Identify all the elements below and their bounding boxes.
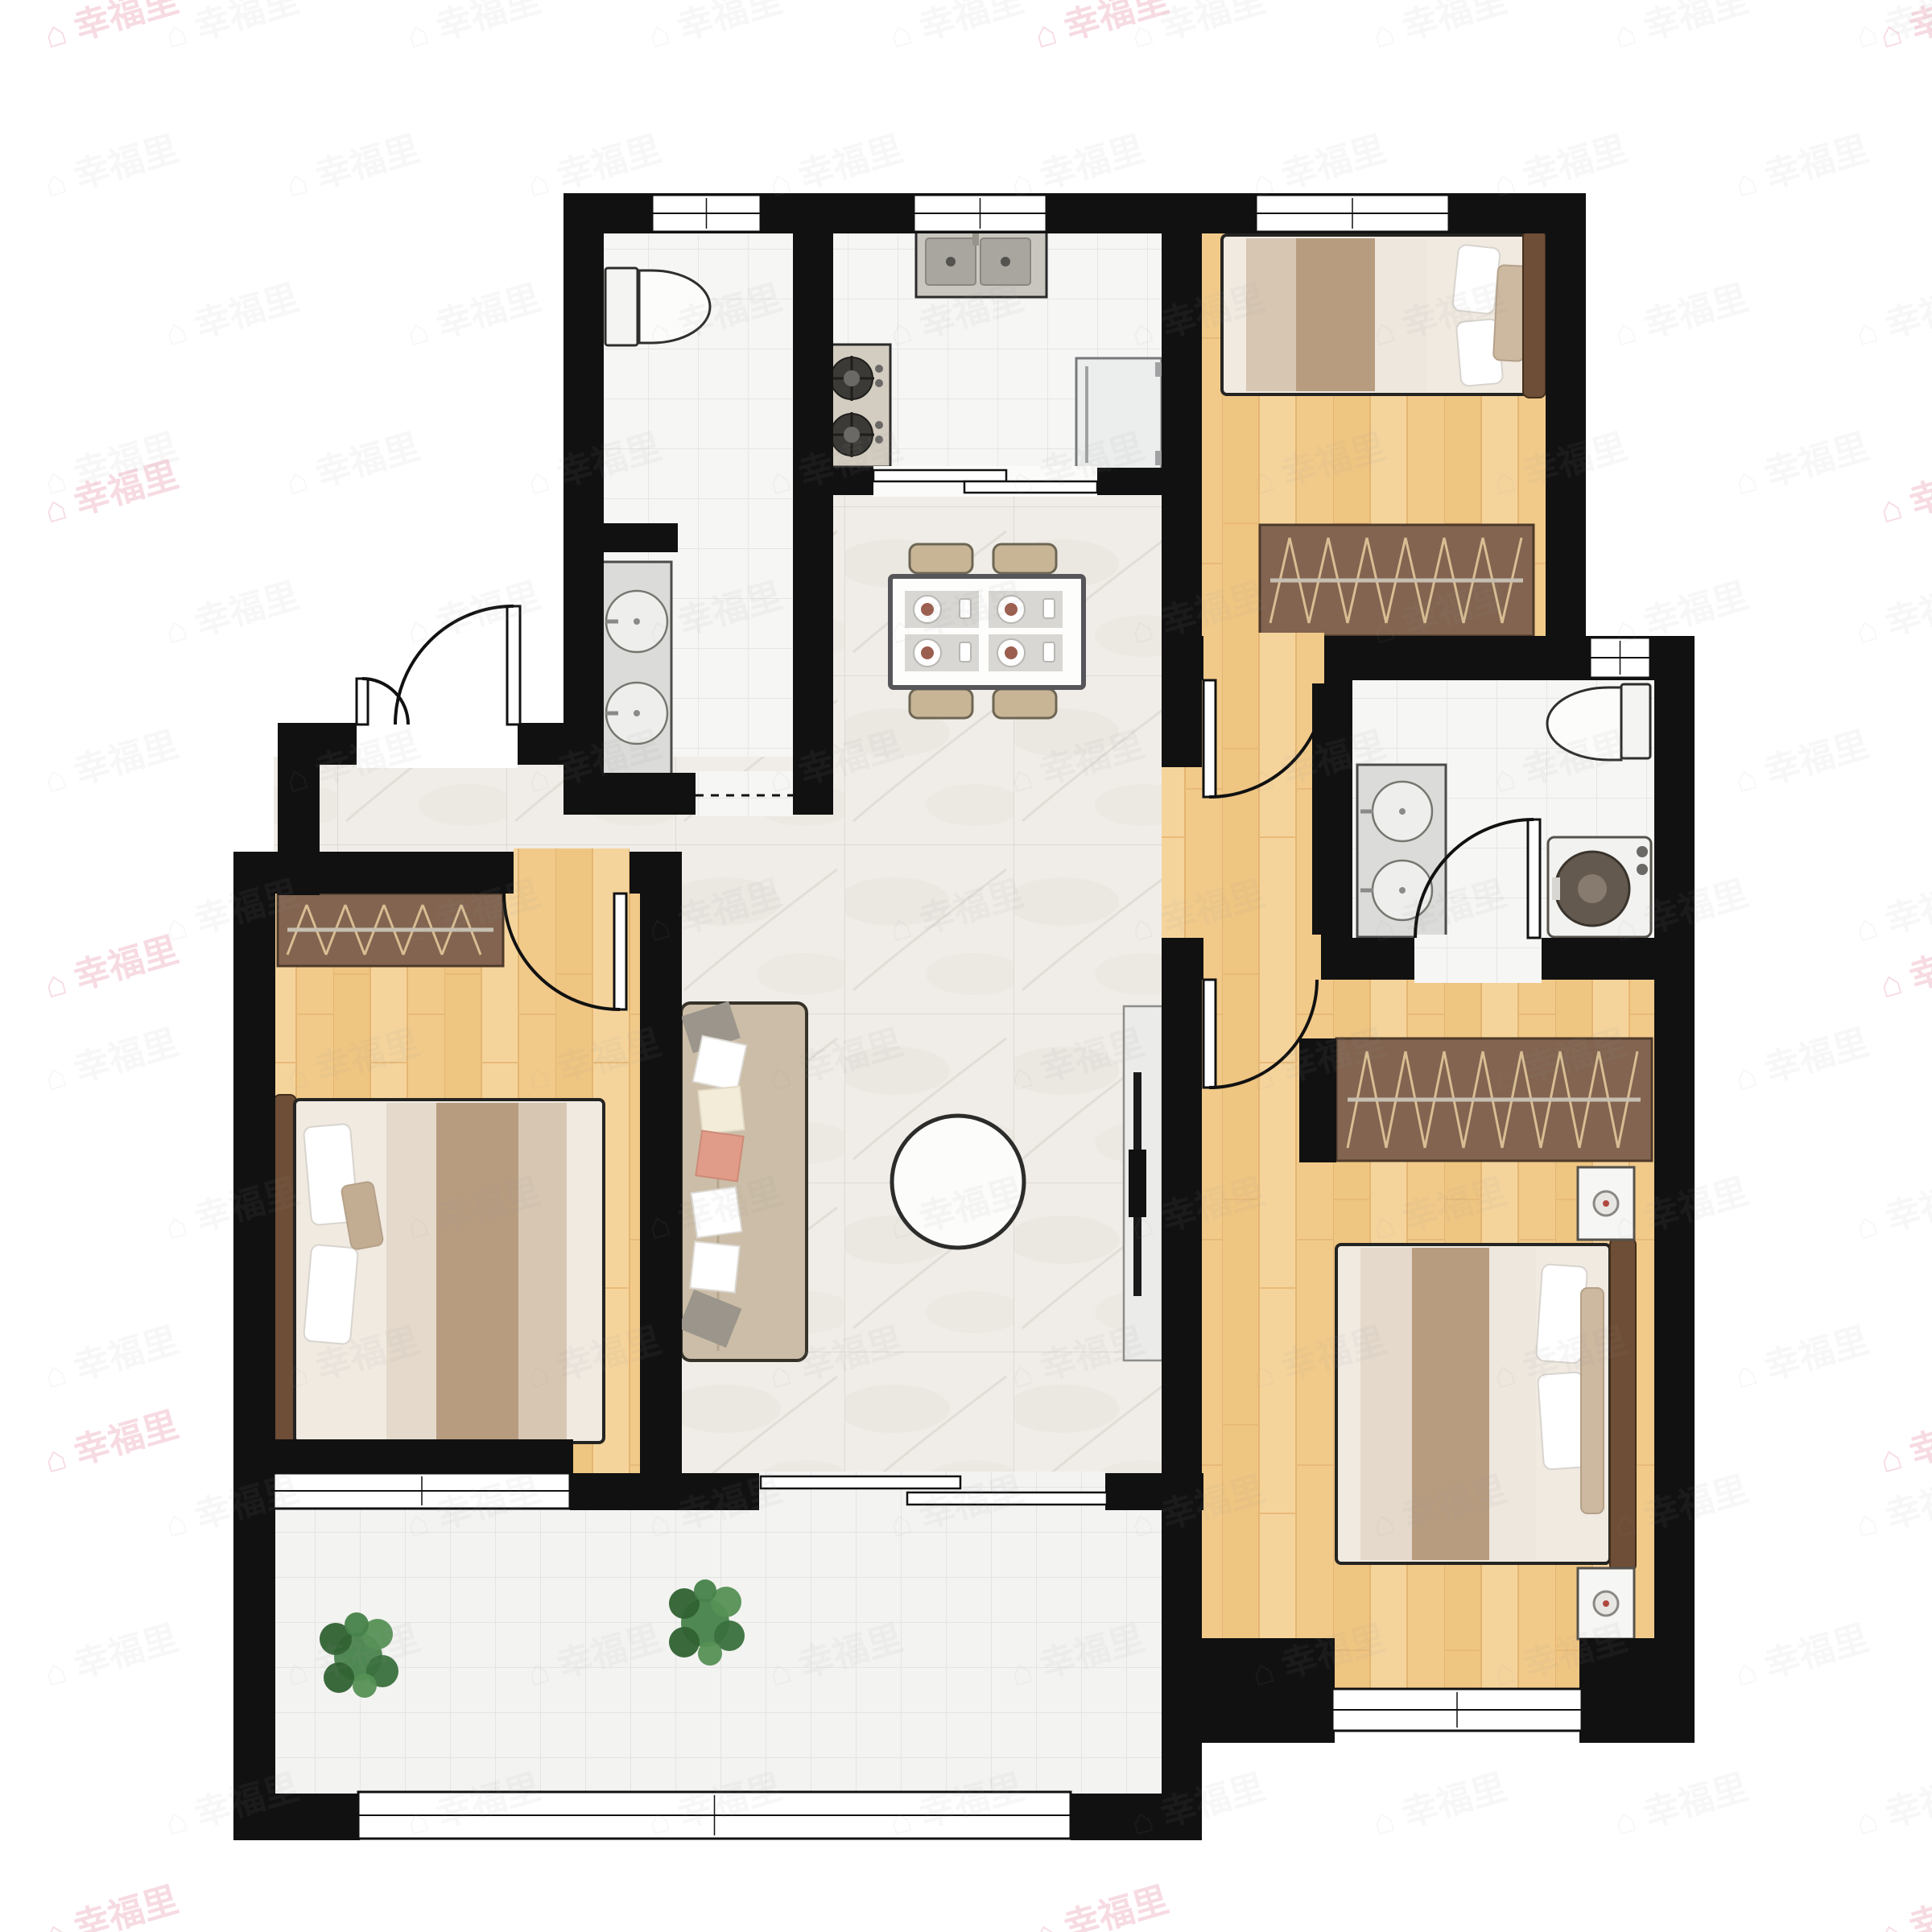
pillow-icon bbox=[1581, 1288, 1604, 1513]
watermark-text: ⌂ 幸福里 bbox=[402, 0, 545, 56]
watermark: ⌂ 幸福里 bbox=[1730, 129, 1873, 204]
wall bbox=[1312, 636, 1352, 978]
wall bbox=[233, 852, 275, 1797]
dining-chair bbox=[993, 544, 1056, 573]
watermark-text: ⌂ 幸福里 bbox=[1875, 1880, 1932, 1932]
window bbox=[652, 195, 761, 232]
watermark: ⌂ 幸福里 bbox=[402, 278, 545, 353]
watermark-text: ⌂ 幸福里 bbox=[1609, 0, 1752, 56]
fridge-hinge bbox=[1155, 362, 1162, 377]
sink-drain bbox=[1001, 257, 1010, 266]
plant-leaf bbox=[669, 1627, 700, 1657]
watermark-text: ⌂ 幸福里 bbox=[1730, 427, 1873, 502]
headboard bbox=[1523, 230, 1546, 398]
watermark: ⌂ 幸福里 bbox=[885, 0, 1028, 56]
watermark: ⌂ 幸福里 bbox=[1875, 455, 1932, 530]
wall bbox=[1162, 938, 1202, 1839]
watermark: ⌂ 幸福里 bbox=[39, 724, 183, 800]
watermark-text: ⌂ 幸福里 bbox=[1730, 724, 1873, 800]
window bbox=[1332, 1689, 1582, 1731]
watermark: ⌂ 幸福里 bbox=[1368, 0, 1511, 56]
watermark: ⌂ 幸福里 bbox=[39, 1022, 183, 1098]
dining-chair bbox=[910, 544, 972, 573]
sink-drain bbox=[1399, 887, 1406, 894]
sliding-door-panel bbox=[873, 470, 1006, 481]
watermark-text: ⌂ 幸福里 bbox=[39, 1320, 183, 1396]
watermark-text: ⌂ 幸福里 bbox=[1730, 1618, 1873, 1694]
wall bbox=[1162, 193, 1202, 767]
cup-icon bbox=[960, 642, 971, 662]
watermark-text: ⌂ 幸福里 bbox=[402, 278, 545, 353]
watermark-text: ⌂ 幸福里 bbox=[160, 576, 303, 651]
watermark-text: ⌂ 幸福里 bbox=[1030, 1880, 1173, 1932]
door-leaf bbox=[614, 894, 626, 1009]
watermark-text: ⌂ 幸福里 bbox=[1609, 1767, 1752, 1843]
door-leaf bbox=[1528, 819, 1540, 938]
watermark: ⌂ 幸福里 bbox=[1030, 1880, 1173, 1932]
wall bbox=[274, 1439, 573, 1475]
watermark: ⌂ 幸福里 bbox=[1730, 427, 1873, 502]
watermark-text: ⌂ 幸福里 bbox=[1851, 278, 1932, 353]
watermark-text: ⌂ 幸福里 bbox=[402, 576, 545, 651]
watermark: ⌂ 幸福里 bbox=[160, 0, 303, 56]
watermark-text: ⌂ 幸福里 bbox=[1368, 0, 1511, 56]
watermark-text: ⌂ 幸福里 bbox=[281, 129, 424, 204]
blanket-band bbox=[1296, 238, 1375, 391]
plant-leaf bbox=[353, 1674, 377, 1698]
watermark-text: ⌂ 幸福里 bbox=[160, 0, 303, 56]
fridge-hinge bbox=[1155, 451, 1162, 465]
watermark-text: ⌂ 幸福里 bbox=[1851, 1469, 1932, 1545]
watermark-text: ⌂ 幸福里 bbox=[1730, 1022, 1873, 1098]
window bbox=[1256, 195, 1449, 232]
dining-chair bbox=[993, 689, 1056, 718]
watermark-text: ⌂ 幸福里 bbox=[1875, 455, 1932, 530]
sofa-pillow bbox=[698, 1086, 744, 1133]
watermark: ⌂ 幸福里 bbox=[1609, 0, 1752, 56]
burner-center bbox=[844, 370, 860, 386]
pillow-icon bbox=[303, 1245, 358, 1345]
watermark: ⌂ 幸福里 bbox=[1609, 1767, 1752, 1843]
watermark: ⌂ 幸福里 bbox=[281, 129, 424, 204]
watermark: ⌂ 幸福里 bbox=[1368, 1767, 1511, 1843]
sink-drain bbox=[946, 257, 956, 266]
sink-drain bbox=[634, 618, 640, 625]
watermark-text: ⌂ 幸福里 bbox=[160, 278, 303, 353]
sink-drain bbox=[1399, 808, 1406, 815]
washer-drum-inner bbox=[1578, 874, 1607, 903]
wall bbox=[793, 193, 833, 815]
sofa-pillow bbox=[693, 1036, 747, 1091]
cup-icon bbox=[1043, 599, 1055, 618]
watermark-text: ⌂ 幸福里 bbox=[39, 0, 183, 56]
watermark-text: ⌂ 幸福里 bbox=[1368, 1767, 1511, 1843]
watermark-text: ⌂ 幸福里 bbox=[1730, 129, 1873, 204]
watermark: ⌂ 幸福里 bbox=[1875, 1880, 1932, 1932]
door-leaf bbox=[357, 679, 368, 724]
watermark-text: ⌂ 幸福里 bbox=[1875, 1405, 1932, 1480]
cup-icon bbox=[1043, 642, 1055, 662]
watermark-text: ⌂ 幸福里 bbox=[1609, 278, 1752, 353]
watermark: ⌂ 幸福里 bbox=[1851, 576, 1932, 651]
watermark: ⌂ 幸福里 bbox=[281, 427, 424, 502]
blanket-band bbox=[436, 1103, 518, 1439]
stove-knob bbox=[875, 379, 883, 387]
watermark-text: ⌂ 幸福里 bbox=[1730, 1320, 1873, 1396]
watermark: ⌂ 幸福里 bbox=[1851, 1767, 1932, 1843]
nightstand-dot bbox=[1603, 1200, 1609, 1207]
watermark: ⌂ 幸福里 bbox=[1851, 873, 1932, 949]
nightstand-dot bbox=[1603, 1600, 1609, 1607]
watermark-text: ⌂ 幸福里 bbox=[1851, 873, 1932, 949]
blanket-band bbox=[386, 1103, 436, 1439]
watermark: ⌂ 幸福里 bbox=[1875, 1405, 1932, 1480]
wall bbox=[1546, 193, 1586, 676]
door-opening bbox=[1414, 935, 1542, 983]
watermark: ⌂ 幸福里 bbox=[39, 0, 183, 56]
watermark-text: ⌂ 幸福里 bbox=[39, 930, 183, 1005]
dining-chair bbox=[910, 689, 972, 718]
watermark-text: ⌂ 幸福里 bbox=[1851, 576, 1932, 651]
watermark: ⌂ 幸福里 bbox=[402, 0, 545, 56]
watermark-text: ⌂ 幸福里 bbox=[1851, 1171, 1932, 1247]
wall bbox=[602, 523, 678, 552]
blanket-band bbox=[1489, 1248, 1536, 1560]
watermark: ⌂ 幸福里 bbox=[1851, 1469, 1932, 1545]
stove-knob bbox=[875, 421, 883, 429]
watermark: ⌂ 幸福里 bbox=[39, 1880, 183, 1932]
washer-knob bbox=[1637, 864, 1648, 875]
floor-plan-canvas: ⌂ 幸福里⌂ 幸福里⌂ 幸福里⌂ 幸福里⌂ 幸福里⌂ 幸福里⌂ 幸福里⌂ 幸福里… bbox=[0, 0, 1932, 1932]
watermark-text: ⌂ 幸福里 bbox=[39, 129, 183, 204]
watermark: ⌂ 幸福里 bbox=[1851, 278, 1932, 353]
sofa-pillow bbox=[696, 1131, 743, 1182]
watermark: ⌂ 幸福里 bbox=[39, 1405, 183, 1480]
plate-center bbox=[921, 646, 934, 659]
watermark: ⌂ 幸福里 bbox=[39, 930, 183, 1005]
plant-leaf bbox=[698, 1641, 722, 1666]
watermark: ⌂ 幸福里 bbox=[39, 129, 183, 204]
watermark-text: ⌂ 幸福里 bbox=[39, 1880, 183, 1932]
watermark: ⌂ 幸福里 bbox=[1730, 1320, 1873, 1396]
door-leaf bbox=[1203, 680, 1216, 797]
watermark: ⌂ 幸福里 bbox=[1609, 278, 1752, 353]
watermark: ⌂ 幸福里 bbox=[1851, 1171, 1932, 1247]
toilet-tank-icon bbox=[605, 268, 638, 345]
sofa-pillow bbox=[690, 1241, 740, 1293]
plan-shapes bbox=[233, 193, 1695, 1840]
stove-knob bbox=[875, 365, 883, 373]
watermark: ⌂ 幸福里 bbox=[1730, 724, 1873, 800]
watermark-text: ⌂ 幸福里 bbox=[885, 0, 1028, 56]
plate-center bbox=[1005, 646, 1018, 659]
watermark: ⌂ 幸福里 bbox=[643, 0, 786, 56]
plant-leaf bbox=[694, 1579, 716, 1602]
floor-plan-page: ⌂ 幸福里⌂ 幸福里⌂ 幸福里⌂ 幸福里⌂ 幸福里⌂ 幸福里⌂ 幸福里⌂ 幸福里… bbox=[0, 0, 1932, 1932]
door-opening bbox=[1203, 935, 1321, 983]
sliding-door-panel bbox=[761, 1476, 960, 1488]
watermark: ⌂ 幸福里 bbox=[402, 576, 545, 651]
door-leaf bbox=[1203, 980, 1216, 1088]
watermark: ⌂ 幸福里 bbox=[160, 278, 303, 353]
watermark: ⌂ 幸福里 bbox=[160, 576, 303, 651]
watermark: ⌂ 幸福里 bbox=[1730, 1618, 1873, 1694]
wall bbox=[563, 193, 604, 813]
watermark-text: ⌂ 幸福里 bbox=[1851, 1767, 1932, 1843]
watermark-text: ⌂ 幸福里 bbox=[39, 1405, 183, 1480]
door-opening bbox=[1203, 633, 1324, 683]
watermark-text: ⌂ 幸福里 bbox=[39, 1022, 183, 1098]
watermark: ⌂ 幸福里 bbox=[39, 1320, 183, 1396]
watermark-text: ⌂ 幸福里 bbox=[39, 1618, 183, 1694]
watermark-text: ⌂ 幸福里 bbox=[281, 427, 424, 502]
watermark-text: ⌂ 幸福里 bbox=[643, 0, 786, 56]
washer-knob bbox=[1637, 846, 1648, 857]
washer-slot bbox=[1552, 877, 1560, 900]
sink-drain bbox=[634, 710, 640, 716]
watermark: ⌂ 幸福里 bbox=[1730, 1022, 1873, 1098]
watermark-text: ⌂ 幸福里 bbox=[39, 724, 183, 800]
watermark: ⌂ 幸福里 bbox=[39, 1618, 183, 1694]
